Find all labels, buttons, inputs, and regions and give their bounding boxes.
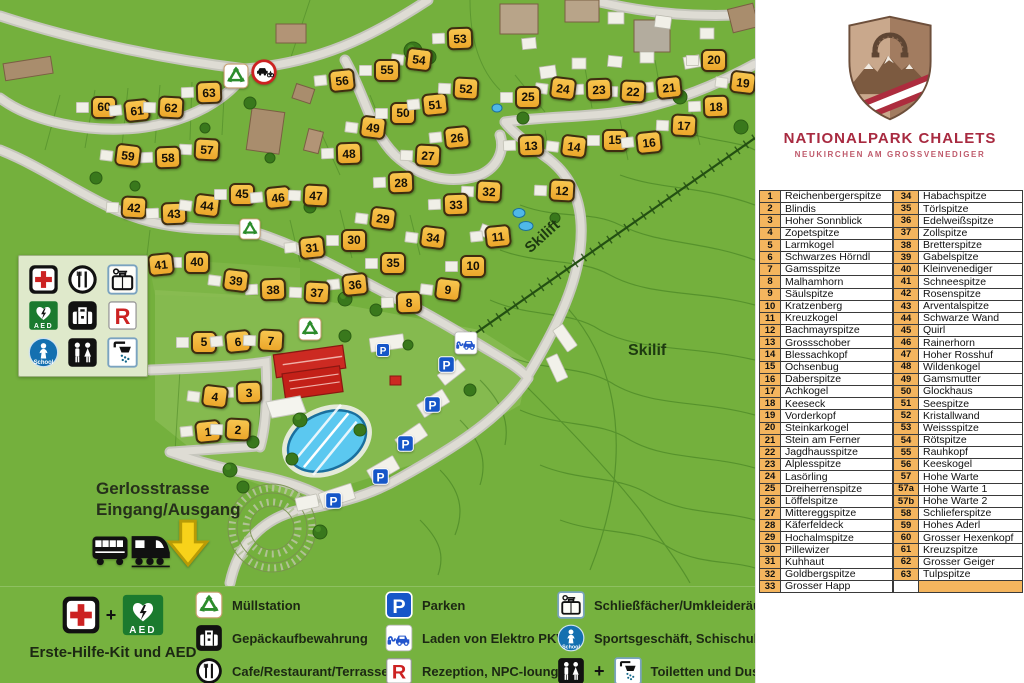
- chalet-30: 30: [341, 229, 367, 252]
- peak-number: 23: [760, 459, 781, 471]
- peak-name: Hoher Sonnblick: [781, 215, 893, 227]
- peak-row: 56Keeskogel: [894, 459, 1023, 471]
- peak-number: 60: [894, 532, 919, 544]
- chalet-driveway-pad: [143, 102, 157, 114]
- chalet-27: 27: [414, 143, 441, 167]
- peak-row: 43Arventalspitze: [894, 300, 1023, 312]
- ski-slope-label: Skilif: [628, 342, 666, 360]
- legend-label: Cafe/Restaurant/Terrasse: [232, 664, 389, 679]
- peak-name: Hohes Aderl: [919, 520, 1023, 532]
- chalet-14: 14: [560, 133, 589, 159]
- peak-row: 47Hoher Rosshuf: [894, 349, 1023, 361]
- peak-name: Kratzenberg: [781, 300, 893, 312]
- chalet-driveway-pad: [686, 55, 699, 66]
- peak-number: 39: [894, 251, 919, 263]
- wc-icon: [67, 337, 98, 368]
- peak-row: 57aHohe Warte 1: [894, 483, 1023, 495]
- plus-sign: +: [106, 605, 117, 626]
- recycle-icon: [239, 218, 261, 240]
- peak-row: 62Grosser Geiger: [894, 556, 1023, 568]
- legend-item: Gepäckaufbewahrung: [195, 624, 389, 652]
- chalet-19: 19: [729, 69, 755, 95]
- peak-name: Dreiherrenspitze: [781, 483, 893, 495]
- chalet-driveway-pad: [656, 120, 670, 132]
- legend-item: Parken: [385, 591, 569, 619]
- peak-row: 29Hochalmspitze: [760, 532, 893, 544]
- peak-row: 50Glockhaus: [894, 386, 1023, 398]
- chalet-10: 10: [460, 255, 486, 278]
- peak-row: 45Quirl: [894, 325, 1023, 337]
- chalet-58: 58: [155, 145, 182, 169]
- peak-row: 52Kristallwand: [894, 410, 1023, 422]
- peak-row: 25Dreiherrenspitze: [760, 483, 893, 495]
- chalet-11: 11: [484, 223, 512, 249]
- peak-row: 57bHohe Warte 2: [894, 495, 1023, 507]
- shower-icon: [614, 657, 642, 683]
- legend-label: Erste-Hilfe-Kit und AED: [30, 644, 197, 661]
- peak-number: 30: [760, 544, 781, 556]
- peak-name: Käferfeldeck: [781, 520, 893, 532]
- peak-name: Grosser Happ: [781, 581, 893, 593]
- peak-number: 51: [894, 398, 919, 410]
- chalet-driveway-pad: [99, 149, 113, 162]
- parken-icon: [325, 492, 342, 509]
- chalet-47: 47: [302, 183, 329, 207]
- chalet-7: 7: [257, 328, 284, 352]
- chalet-driveway-pad: [373, 177, 386, 188]
- chalet-driveway-pad: [404, 231, 418, 244]
- chalet-driveway-pad: [178, 199, 192, 212]
- peak-name: Blessachkopf: [781, 349, 893, 361]
- facility-grid: [19, 256, 147, 376]
- peak-row: 34Habachspitze: [894, 191, 1023, 203]
- peak-name: Gabelspitze: [919, 251, 1023, 263]
- peak-number: 57: [894, 471, 919, 483]
- peak-row: 36Edelweißspitze: [894, 215, 1023, 227]
- peak-name: Schlieferspitze: [919, 507, 1023, 519]
- chalet-driveway-pad: [354, 212, 368, 225]
- peak-number: 5: [760, 239, 781, 251]
- street-label: Gerlosstrasse: [96, 479, 209, 499]
- chalet-driveway-pad: [365, 258, 378, 269]
- peak-row: 46Rainerhorn: [894, 337, 1023, 349]
- legend-label: Laden von Elektro PKW: [422, 631, 569, 646]
- peak-name: Bretterspitze: [919, 239, 1023, 251]
- chalet-driveway-pad: [688, 101, 701, 112]
- facility-legend-box: [18, 255, 148, 377]
- chalet-62: 62: [157, 95, 184, 119]
- chalet-32: 32: [475, 179, 502, 203]
- peak-name: Lasörling: [781, 471, 893, 483]
- peak-name: Grossschober: [781, 337, 893, 349]
- peak-row: 3Hoher Sonnblick: [760, 215, 893, 227]
- peak-number: 26: [760, 495, 781, 507]
- peak-row: 1Reichenbergerspitze: [760, 191, 893, 203]
- peak-number: 47: [894, 349, 919, 361]
- peak-number: 24: [760, 471, 781, 483]
- legend-label: Sportsgeschäft, Schischule: [594, 631, 755, 646]
- chalet-driveway-pad: [344, 121, 358, 134]
- chalet-driveway-pad: [432, 33, 445, 44]
- peak-row: 17Achkogel: [760, 386, 893, 398]
- peak-number: 41: [894, 276, 919, 288]
- chalet-21: 21: [655, 74, 683, 100]
- peak-number: 52: [894, 410, 919, 422]
- chalet-39: 39: [222, 267, 251, 293]
- peak-name: Alplesspitze: [781, 459, 893, 471]
- chalet-2: 2: [224, 417, 251, 441]
- aed-icon: [121, 593, 165, 637]
- peak-name: Rosenspitze: [919, 288, 1023, 300]
- peak-number: 29: [760, 532, 781, 544]
- chalet-driveway-pad: [428, 199, 441, 210]
- resort-map: AED R School P: [0, 0, 755, 683]
- chalet-driveway-pad: [359, 65, 372, 76]
- peak-name: Schwarzes Hörndl: [781, 251, 893, 263]
- chalet-driveway-pad: [214, 189, 227, 200]
- peak-row: 31Kuhhaut: [760, 556, 893, 568]
- peak-number: 55: [894, 446, 919, 458]
- peak-row: 9Säulspitze: [760, 288, 893, 300]
- peak-row: 28Käferfeldeck: [760, 520, 893, 532]
- peak-number: 34: [894, 191, 919, 203]
- peak-name: [919, 581, 1023, 593]
- peak-number: 13: [760, 337, 781, 349]
- peak-name: Arventalspitze: [919, 300, 1023, 312]
- peak-name: Weissspitze: [919, 422, 1023, 434]
- chalet-29: 29: [369, 205, 398, 231]
- peak-table-right: 34Habachspitze35Törlspitze36Edelweißspit…: [893, 190, 1023, 593]
- peak-row: 54Rötspitze: [894, 434, 1023, 446]
- peak-row: 42Rosenspitze: [894, 288, 1023, 300]
- peak-name: Gamsspitze: [781, 264, 893, 276]
- chalet-driveway-pad: [587, 135, 600, 146]
- peak-number: 57a: [894, 483, 919, 495]
- peak-number: 33: [760, 581, 781, 593]
- peak-number: 46: [894, 337, 919, 349]
- chalet-8: 8: [396, 290, 423, 314]
- peak-row: 32Goldbergspitze: [760, 568, 893, 580]
- peak-row: 2Blindis: [760, 203, 893, 215]
- chalet-25: 25: [515, 86, 541, 109]
- chalet-20: 20: [701, 49, 727, 72]
- peak-name: Schwarze Wand: [919, 312, 1023, 324]
- parken-icon: [438, 356, 455, 373]
- legend-label: Gepäckaufbewahrung: [232, 631, 368, 646]
- peak-number: 25: [760, 483, 781, 495]
- peak-number: 48: [894, 361, 919, 373]
- legend-item: Rezeption, NPC-lounge: [385, 657, 569, 683]
- peak-name: Grosser Geiger: [919, 556, 1023, 568]
- peak-row: 51Seespitze: [894, 398, 1023, 410]
- chalet-driveway-pad: [534, 185, 548, 197]
- noentry-icon: [251, 59, 277, 85]
- chalet-55: 55: [374, 59, 400, 82]
- chalet-driveway-pad: [503, 140, 516, 151]
- peak-row: 12Bachmayrspitze: [760, 325, 893, 337]
- peak-row: 53Weissspitze: [894, 422, 1023, 434]
- entrance-label: Eingang/Ausgang: [96, 500, 241, 520]
- locker-icon: [557, 591, 585, 619]
- peak-name: Törlspitze: [919, 203, 1023, 215]
- peak-number: 59: [894, 520, 919, 532]
- shower-icon: [107, 337, 138, 368]
- peak-row: 59Hohes Aderl: [894, 520, 1023, 532]
- peak-number: 12: [760, 325, 781, 337]
- food-icon: [67, 264, 98, 295]
- wc-icon: [557, 657, 585, 683]
- peak-row: 49Gamsmutter: [894, 373, 1023, 385]
- peak-number: 50: [894, 386, 919, 398]
- peak-row: 40Kleinvenediger: [894, 264, 1023, 276]
- peak-row: 41Schneespitze: [894, 276, 1023, 288]
- peak-row: 4Zopetspitze: [760, 227, 893, 239]
- peak-number: 11: [760, 312, 781, 324]
- peak-name: Gamsmutter: [919, 373, 1023, 385]
- chalet-37: 37: [303, 280, 330, 304]
- peak-name: Löffelspitze: [781, 495, 893, 507]
- peak-row: 21Stein am Ferner: [760, 434, 893, 446]
- chalet-57: 57: [193, 137, 220, 161]
- aed-icon: [28, 300, 59, 331]
- peak-number: 61: [894, 544, 919, 556]
- chalet-63: 63: [196, 80, 223, 104]
- peak-name: Daberspitze: [781, 373, 893, 385]
- bus-icon: [90, 529, 130, 569]
- firstaid-icon: [28, 264, 59, 295]
- chalet-41: 41: [147, 251, 175, 277]
- peak-name: Hohe Warte 2: [919, 495, 1023, 507]
- recycle-icon: [195, 591, 223, 619]
- peak-name: Rauhkopf: [919, 446, 1023, 458]
- legend-first-aid-group: + Erste-Hilfe-Kit und AED: [28, 593, 198, 661]
- rezeption-icon: [107, 300, 138, 331]
- peak-name: Keeskogel: [919, 459, 1023, 471]
- rezeption-icon: [385, 657, 413, 683]
- peak-row: 6Schwarzes Hörndl: [760, 251, 893, 263]
- chalet-28: 28: [388, 170, 415, 194]
- chalet-24: 24: [549, 75, 578, 101]
- peak-row: 15Ochsenbug: [760, 361, 893, 373]
- chalet-13: 13: [518, 133, 545, 157]
- peak-name: Ochsenbug: [781, 361, 893, 373]
- peak-row: 60Grosser Hexenkopf: [894, 532, 1023, 544]
- chalet-42: 42: [120, 195, 147, 219]
- peak-number: 57b: [894, 495, 919, 507]
- peak-number: 62: [894, 556, 919, 568]
- peak-number: 9: [760, 288, 781, 300]
- chalet-31: 31: [298, 234, 326, 260]
- peak-name: Jagdhausspitze: [781, 446, 893, 458]
- peak-number: 8: [760, 276, 781, 288]
- peak-name: Mittereggspitze: [781, 507, 893, 519]
- chalet-driveway-pad: [288, 190, 302, 202]
- peak-name: Blindis: [781, 203, 893, 215]
- legend-label: Schließfächer/Umkleideräume: [594, 598, 755, 613]
- chalet-driveway-pad: [243, 335, 257, 347]
- chalet-3: 3: [236, 380, 263, 404]
- chalet-4: 4: [201, 383, 230, 409]
- peak-row: 20Steinkarkogel: [760, 422, 893, 434]
- peak-number: 16: [760, 373, 781, 385]
- peak-number: 38: [894, 239, 919, 251]
- peak-name: Säulspitze: [781, 288, 893, 300]
- peak-number: 63: [894, 568, 919, 580]
- peak-number: 18: [760, 398, 781, 410]
- peak-number: 58: [894, 507, 919, 519]
- peak-name: Zopetspitze: [781, 227, 893, 239]
- chalet-16: 16: [635, 129, 663, 155]
- peak-name: Zollspitze: [919, 227, 1023, 239]
- chalet-driveway-pad: [209, 335, 223, 347]
- peak-number: 22: [760, 446, 781, 458]
- peak-row: 19Vorderkopf: [760, 410, 893, 422]
- peak-number: [894, 581, 919, 593]
- parken-icon: [385, 591, 413, 619]
- peak-name: Rainerhorn: [919, 337, 1023, 349]
- legend-label: Parken: [422, 598, 465, 613]
- chalet-36: 36: [341, 271, 369, 297]
- peak-name: Steinkarkogel: [781, 422, 893, 434]
- parken-icon: [424, 396, 441, 413]
- chalet-12: 12: [548, 178, 575, 202]
- peak-row: [894, 581, 1023, 593]
- chalet-driveway-pad: [469, 230, 483, 242]
- chalet-38: 38: [260, 277, 287, 301]
- chalet-driveway-pad: [438, 83, 452, 95]
- echarge-icon: [454, 331, 478, 355]
- peak-row: 39Gabelspitze: [894, 251, 1023, 263]
- peak-name: Achkogel: [781, 386, 893, 398]
- chalet-driveway-pad: [375, 108, 388, 119]
- legend-label: Toiletten und Duschen: [651, 664, 755, 679]
- chalet-35: 35: [380, 252, 406, 275]
- peak-name: Rötspitze: [919, 434, 1023, 446]
- peak-row: 30Pillewizer: [760, 544, 893, 556]
- chalet-56: 56: [328, 67, 356, 93]
- chalet-driveway-pad: [283, 241, 297, 253]
- chalet-driveway-pad: [179, 425, 193, 437]
- peak-number: 21: [760, 434, 781, 446]
- chalet-33: 33: [443, 192, 470, 216]
- peak-number: 6: [760, 251, 781, 263]
- peak-number: 7: [760, 264, 781, 276]
- chalet-driveway-pad: [181, 87, 194, 98]
- peak-row: 18Keeseck: [760, 398, 893, 410]
- peak-row: 27Mittereggspitze: [760, 507, 893, 519]
- peak-number: 35: [894, 203, 919, 215]
- peak-number: 20: [760, 422, 781, 434]
- peak-row: 7Gamsspitze: [760, 264, 893, 276]
- chalet-driveway-pad: [313, 74, 327, 86]
- peak-row: 26Löffelspitze: [760, 495, 893, 507]
- peak-name: Reichenbergerspitze: [781, 191, 893, 203]
- nationalpark-chalets-logo: [832, 10, 948, 128]
- chalet-driveway-pad: [321, 148, 334, 159]
- peak-row: 10Kratzenberg: [760, 300, 893, 312]
- peak-number: 31: [760, 556, 781, 568]
- chalet-driveway-pad: [406, 98, 420, 110]
- peak-number: 4: [760, 227, 781, 239]
- brand-subtitle: NEUKIRCHEN AM GROSSVENEDIGER: [756, 150, 1024, 159]
- peak-number: 3: [760, 215, 781, 227]
- chalet-34: 34: [419, 224, 448, 250]
- parken-icon: [376, 343, 390, 357]
- peak-number: 42: [894, 288, 919, 300]
- peak-row: 13Grossschober: [760, 337, 893, 349]
- legend-column-4: Schließfächer/UmkleideräumeSportsgeschäf…: [557, 591, 755, 683]
- chalet-driveway-pad: [428, 131, 442, 143]
- chalet-driveway-pad: [326, 235, 339, 246]
- brand-title: NATIONALPARK CHALETS: [756, 130, 1024, 147]
- school-icon: [28, 337, 59, 368]
- chalet-driveway-pad: [76, 102, 89, 113]
- chalet-driveway-pad: [146, 208, 159, 219]
- peak-row: 35Törlspitze: [894, 203, 1023, 215]
- peak-name: Bachmayrspitze: [781, 325, 893, 337]
- echarge-icon: [385, 624, 413, 652]
- chalet-22: 22: [619, 79, 646, 103]
- chalet-driveway-pad: [140, 152, 153, 163]
- legend-column-2: MüllstationGepäckaufbewahrungCafe/Restau…: [195, 591, 389, 683]
- legend-item: Schließfächer/Umkleideräume: [557, 591, 755, 619]
- peak-number: 44: [894, 312, 919, 324]
- legend-label: Rezeption, NPC-lounge: [422, 664, 566, 679]
- peak-row: 61Kreuzspitze: [894, 544, 1023, 556]
- peak-number: 43: [894, 300, 919, 312]
- legend-item: +Toiletten und Duschen: [557, 657, 755, 683]
- peak-name: Tulpspitze: [919, 568, 1023, 580]
- peak-name: Kreuzkogel: [781, 312, 893, 324]
- peak-row: 11Kreuzkogel: [760, 312, 893, 324]
- peak-number: 15: [760, 361, 781, 373]
- chalet-driveway-pad: [186, 390, 200, 403]
- peak-row: 22Jagdhausspitze: [760, 446, 893, 458]
- peak-name: Habachspitze: [919, 191, 1023, 203]
- food-icon: [195, 657, 223, 683]
- peak-name: Larmkogel: [781, 239, 893, 251]
- peak-name: Keeseck: [781, 398, 893, 410]
- recycle-icon: [223, 63, 249, 89]
- legend-item: Müllstation: [195, 591, 389, 619]
- peak-row: 55Rauhkopf: [894, 446, 1023, 458]
- peak-number: 36: [894, 215, 919, 227]
- chalet-driveway-pad: [500, 92, 513, 103]
- peak-number: 28: [760, 520, 781, 532]
- arrowdown-icon: [163, 518, 213, 568]
- peak-name: Hochalmspitze: [781, 532, 893, 544]
- peak-row: 14Blessachkopf: [760, 349, 893, 361]
- peak-number: 40: [894, 264, 919, 276]
- chalet-driveway-pad: [445, 261, 458, 272]
- first-aid-icon: [61, 595, 101, 635]
- peak-row: 58Schlieferspitze: [894, 507, 1023, 519]
- peak-row: 48Wildenkogel: [894, 361, 1023, 373]
- peak-row: 5Larmkogel: [760, 239, 893, 251]
- luggage-icon: [67, 300, 98, 331]
- peak-name: Kristallwand: [919, 410, 1023, 422]
- peak-name: Kuhhaut: [781, 556, 893, 568]
- peak-name: Hoher Rosshuf: [919, 349, 1023, 361]
- legend-item: Cafe/Restaurant/Terrasse: [195, 657, 389, 683]
- peak-number: 10: [760, 300, 781, 312]
- chalet-17: 17: [670, 113, 697, 137]
- peak-row: 37Zollspitze: [894, 227, 1023, 239]
- chalet-driveway-pad: [106, 202, 120, 214]
- chalet-52: 52: [452, 76, 479, 100]
- peak-tables: 1Reichenbergerspitze2Blindis3Hoher Sonnb…: [759, 190, 1023, 593]
- peak-number: 17: [760, 386, 781, 398]
